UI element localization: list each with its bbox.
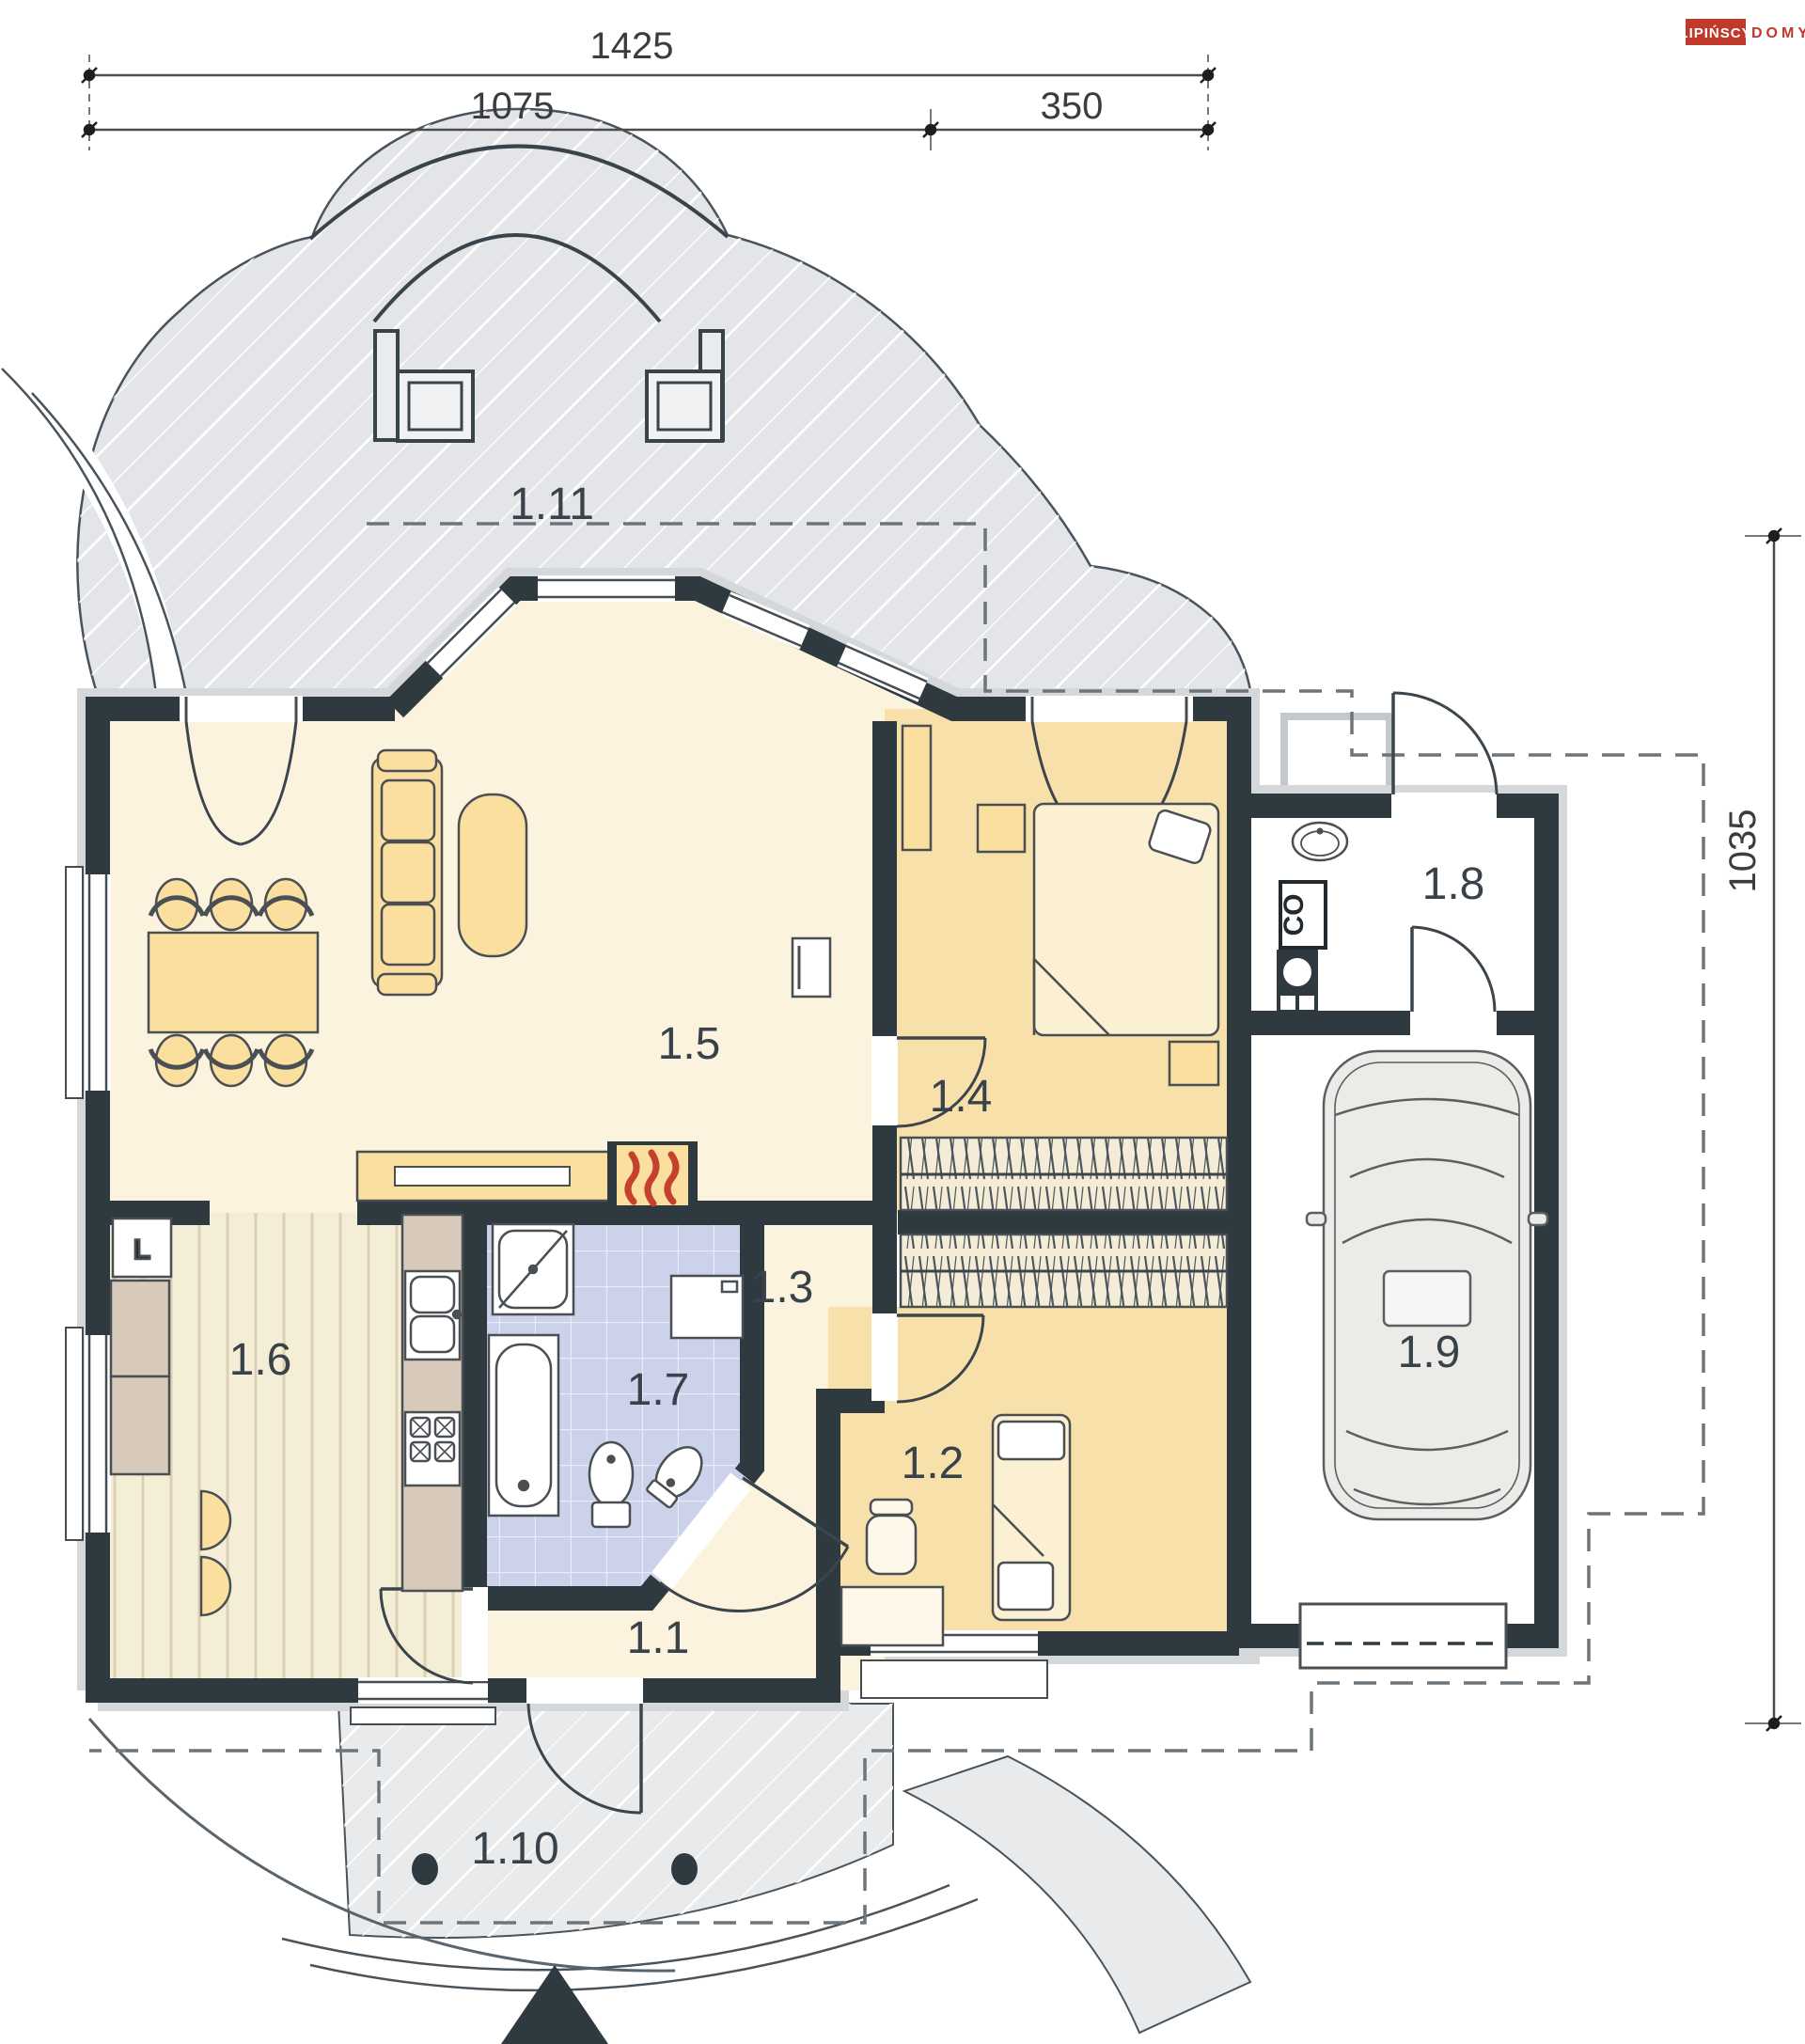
dim-total-width: 1425 — [590, 25, 674, 67]
label-room-1-9: 1.9 — [1398, 1328, 1461, 1377]
desk-chair — [867, 1500, 916, 1574]
brand-logo: LIPIŃSCY DOMY — [1679, 19, 1805, 45]
dining-table — [149, 933, 318, 1032]
side-entry-step — [1284, 716, 1389, 790]
dining-set — [149, 879, 318, 1086]
window-kitchen-west — [66, 1328, 106, 1540]
label-room-1-4: 1.4 — [930, 1072, 993, 1122]
garage-gate — [1300, 1604, 1506, 1668]
label-room-1-1: 1.1 — [627, 1613, 690, 1663]
washing-machine-detail — [722, 1281, 737, 1292]
label-room-1-3: 1.3 — [751, 1263, 814, 1313]
fridge-letter: L — [133, 1234, 150, 1266]
shower — [493, 1224, 573, 1314]
dining-chairs-bottom — [150, 1035, 312, 1086]
car-mirror-right — [1529, 1213, 1547, 1225]
furnace — [1277, 950, 1318, 1014]
boiler-co: CO — [1279, 882, 1326, 948]
fireplace — [607, 1143, 698, 1207]
tv-cabinet — [793, 938, 830, 997]
bathtub — [489, 1335, 558, 1516]
porch-column-right — [671, 1853, 698, 1885]
dim-depth: 1035 — [1722, 810, 1764, 893]
label-room-1-8: 1.8 — [1422, 859, 1485, 909]
sideboard — [357, 1152, 609, 1201]
dim-garage-width: 350 — [1041, 86, 1104, 127]
coffee-table — [459, 794, 526, 956]
bedroom-main-wardrobe — [902, 726, 931, 850]
window-living-west — [66, 867, 106, 1098]
label-room-1-11: 1.11 — [510, 480, 594, 529]
logo-suffix: DOMY — [1751, 25, 1805, 41]
stove — [405, 1412, 460, 1486]
wardrobe-bedroom-main — [901, 1138, 1227, 1210]
label-room-1-10: 1.10 — [471, 1824, 558, 1874]
floorplan-page: L — [0, 0, 1805, 2044]
toilet — [589, 1442, 633, 1527]
nightstand-2 — [1169, 1042, 1218, 1085]
dining-chairs-top — [150, 879, 312, 930]
pergola-post-left — [375, 331, 398, 440]
window-hall-south — [351, 1682, 495, 1724]
single-bed-pillow — [998, 1422, 1064, 1459]
sofa — [372, 750, 442, 995]
floorplan-drawing: L — [0, 0, 1805, 2044]
kitchen-sink — [405, 1271, 461, 1360]
counter-left-2 — [111, 1376, 169, 1474]
nightstand-1 — [978, 805, 1025, 852]
porch-column-left — [412, 1853, 438, 1885]
label-room-1-2: 1.2 — [902, 1439, 965, 1488]
label-room-1-7: 1.7 — [627, 1365, 690, 1415]
car-sunroof — [1384, 1271, 1470, 1326]
side-walkway — [904, 1756, 1250, 2033]
porch-hatch — [338, 1704, 893, 1938]
logo-name: LIPIŃSCY — [1679, 25, 1751, 41]
bed-foot-table — [998, 1563, 1053, 1610]
desk — [841, 1587, 943, 1645]
washbasin — [1293, 823, 1347, 860]
label-room-1-6: 1.6 — [229, 1335, 292, 1385]
porch-paving — [89, 1704, 1250, 2044]
label-room-1-5: 1.5 — [658, 1019, 721, 1069]
window-bay-top — [538, 580, 675, 597]
counter-left-1 — [111, 1281, 169, 1376]
boiler-label: CO — [1279, 894, 1310, 936]
dim-house-width: 1075 — [471, 86, 555, 127]
entrance-arrow — [501, 1965, 608, 2044]
car — [1307, 1051, 1547, 1519]
car-mirror-left — [1307, 1213, 1326, 1225]
wardrobe-bedroom-small — [901, 1234, 1227, 1307]
